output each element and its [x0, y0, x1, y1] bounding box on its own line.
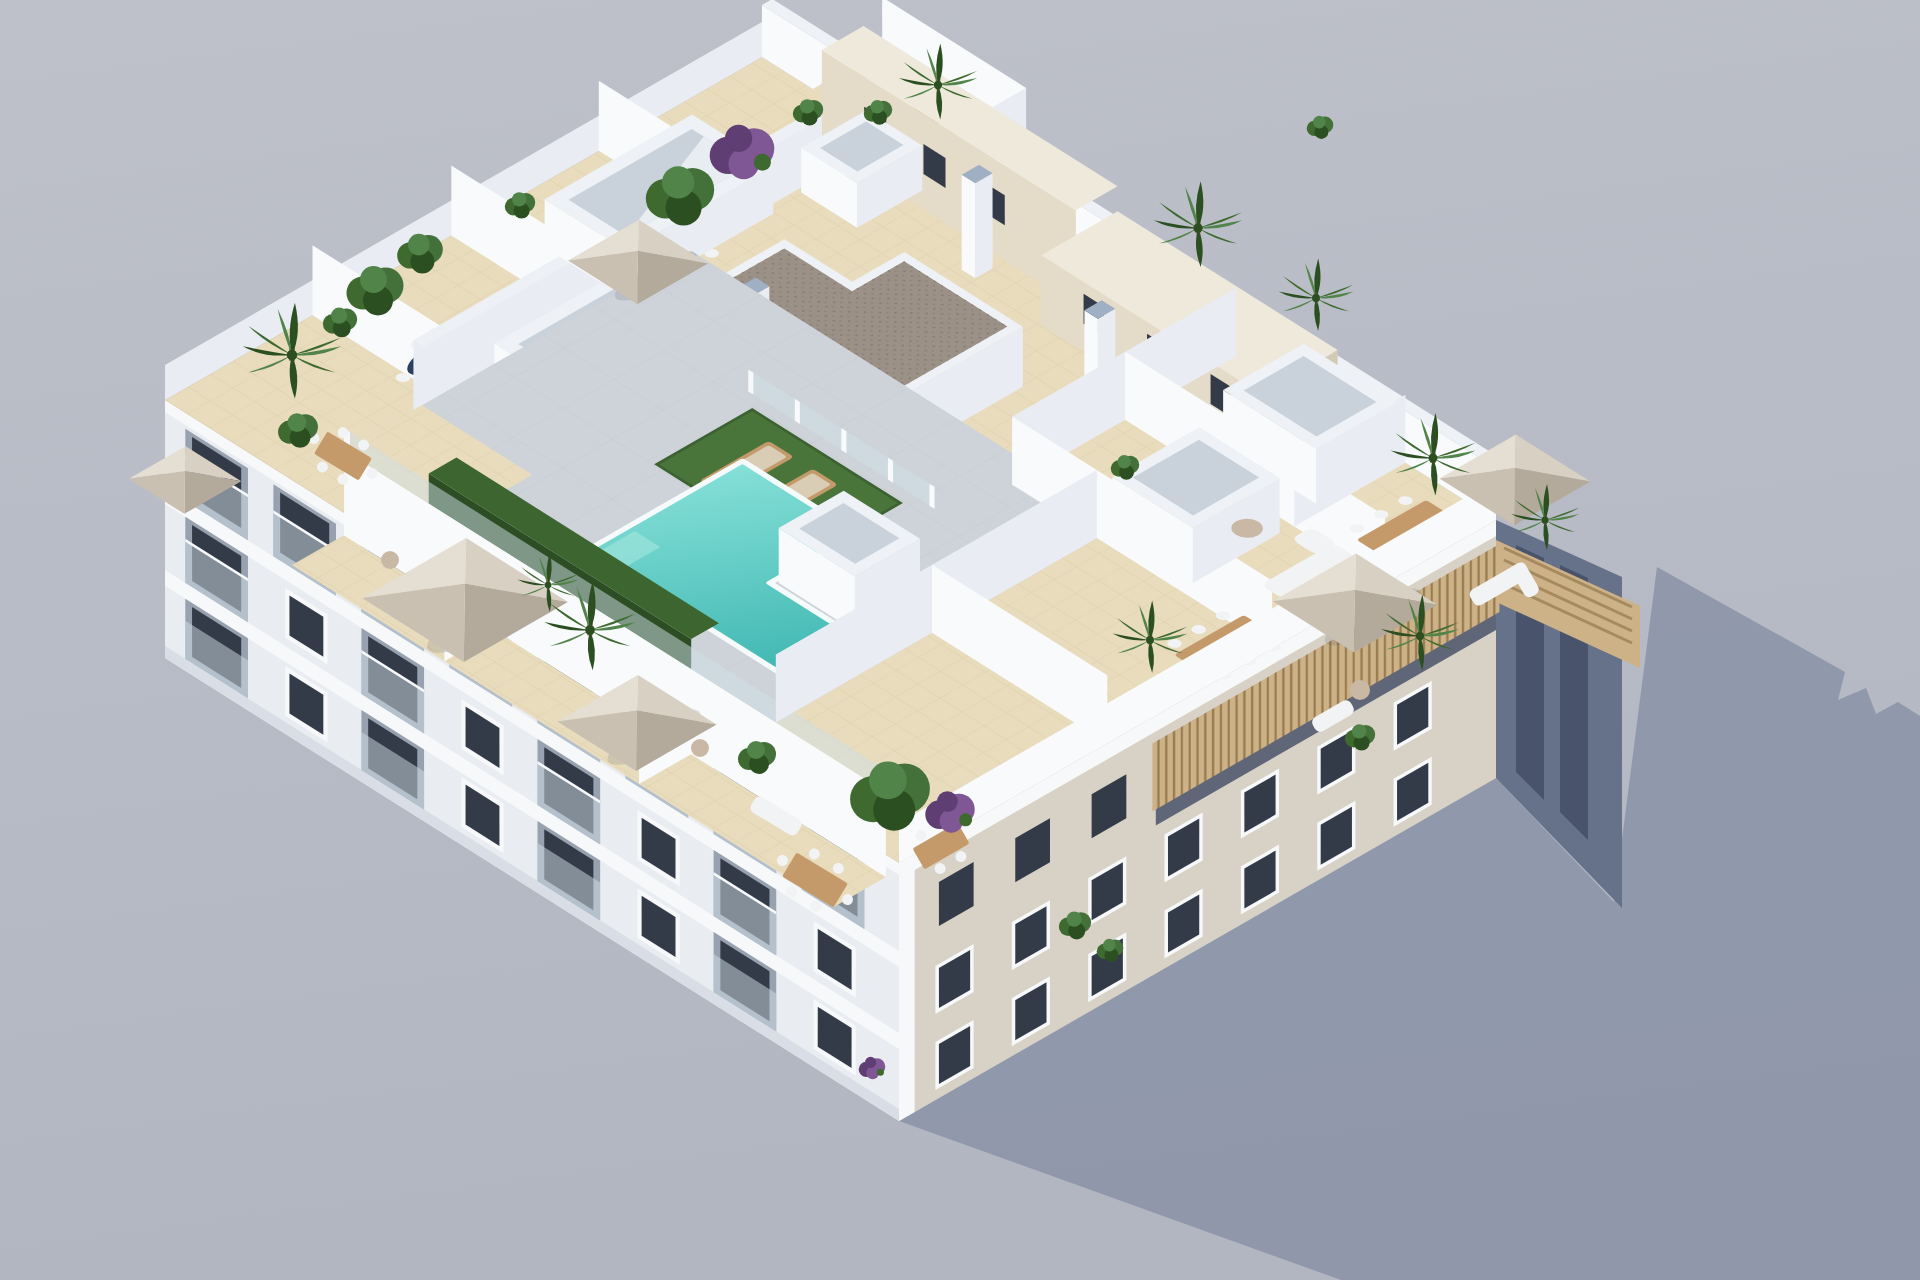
building-rendering [0, 0, 1920, 1280]
side-table [691, 739, 709, 757]
side-table [1350, 680, 1370, 700]
side-table [381, 551, 399, 569]
rendering-canvas [0, 0, 1920, 1280]
